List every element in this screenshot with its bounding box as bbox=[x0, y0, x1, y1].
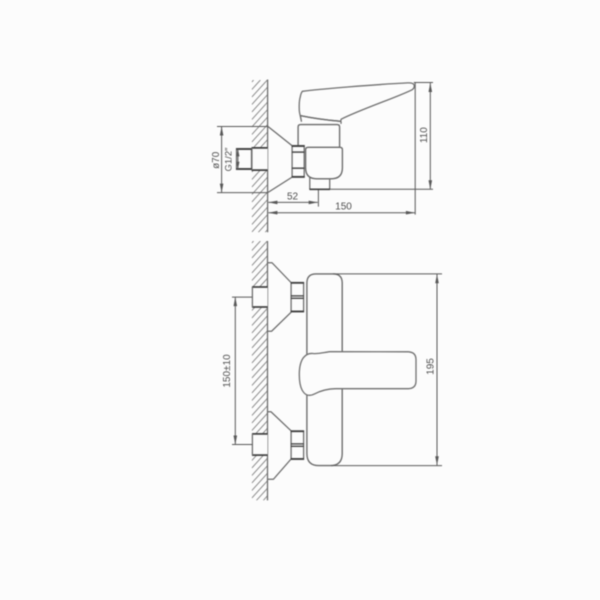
svg-text:110: 110 bbox=[419, 127, 430, 143]
svg-text:ø70: ø70 bbox=[211, 151, 222, 169]
svg-text:G1/2″: G1/2″ bbox=[223, 147, 234, 172]
svg-text:150±10: 150±10 bbox=[222, 354, 233, 388]
svg-text:52: 52 bbox=[287, 192, 299, 203]
svg-text:195: 195 bbox=[426, 358, 437, 375]
svg-text:150: 150 bbox=[335, 202, 352, 213]
